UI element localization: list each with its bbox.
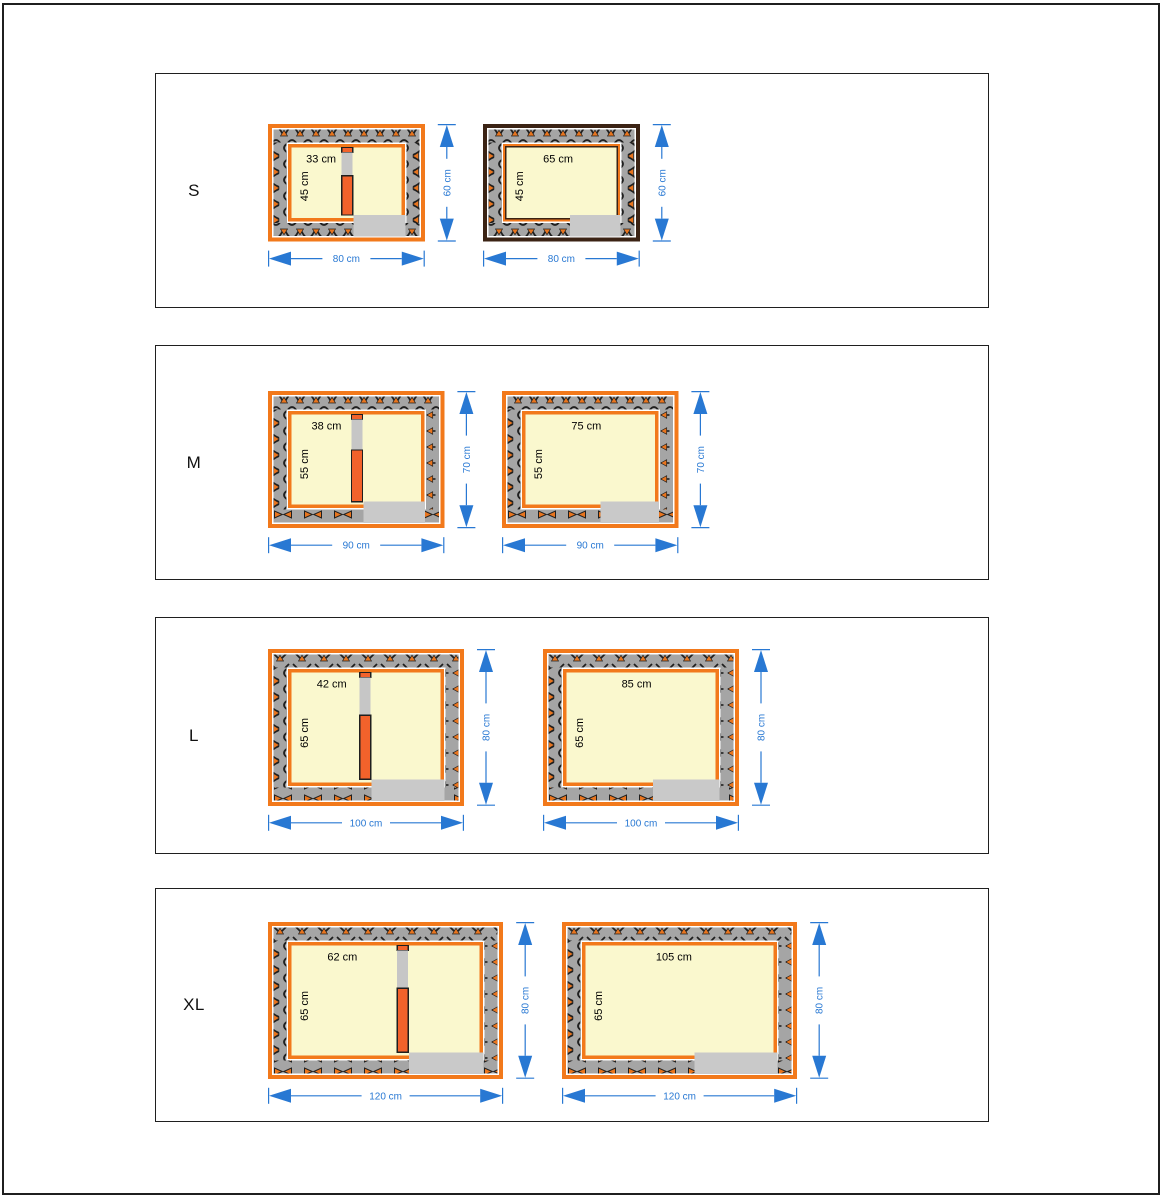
compartment-width-label: 85 cm <box>622 678 652 690</box>
divider-gray-segment <box>352 419 363 449</box>
width-dimension-label: 90 cm <box>343 541 370 552</box>
hatch-left-wall <box>274 667 287 787</box>
hatch-right-wall <box>621 142 634 223</box>
hatch-top-wall <box>273 928 497 941</box>
hatch-right-wall <box>779 941 792 1061</box>
hatch-right-wall <box>660 409 673 509</box>
height-dimension-label: 60 cm <box>657 169 668 196</box>
entrance-opening <box>570 215 620 236</box>
entrance-opening <box>364 502 425 523</box>
compartment-width-label: 75 cm <box>571 420 601 432</box>
divider-cap <box>360 672 371 677</box>
hatch-right-wall <box>445 667 458 787</box>
height-dimension-label: 60 cm <box>442 169 453 196</box>
hatch-right-wall <box>426 409 439 509</box>
entrance-opening <box>409 1052 484 1073</box>
hatch-left-wall <box>508 409 521 509</box>
height-dimension: 80 cm <box>810 923 828 1079</box>
divider-orange-segment <box>352 450 363 502</box>
height-dimension-label: 80 cm <box>481 714 492 741</box>
compartment-width-label: 62 cm <box>327 952 357 964</box>
hatch-top-wall <box>549 654 734 667</box>
hatch-left-wall <box>274 142 287 223</box>
compartment-width-label: 42 cm <box>317 678 347 690</box>
interior-height-label: 55 cm <box>533 449 545 479</box>
width-dimension-label: 120 cm <box>369 1091 402 1102</box>
hatch-top-wall <box>274 654 459 667</box>
row-label-m: M <box>168 453 220 473</box>
height-dimension-label: 70 cm <box>462 446 473 473</box>
size-row-m: M 38 cm55 cm90 cm70 cm75 cm55 cm90 cm70 … <box>155 345 989 580</box>
interior-height-label: 65 cm <box>593 991 605 1021</box>
interior-height-label: 65 cm <box>299 718 311 748</box>
floorplan-m-right: 75 cm55 cm90 cm70 cm <box>502 391 712 562</box>
height-dimension: 80 cm <box>516 923 534 1079</box>
width-dimension-label: 120 cm <box>663 1091 696 1102</box>
page: S 33 cm45 cm80 cm60 cm65 cm45 cm80 cm60 … <box>0 0 1166 1200</box>
interior-height-label: 45 cm <box>514 171 526 201</box>
width-dimension-label: 100 cm <box>350 818 383 829</box>
width-dimension-label: 80 cm <box>548 254 575 265</box>
size-row-l: L 42 cm65 cm100 cm80 cm85 cm65 cm100 cm8… <box>155 617 989 854</box>
hatch-right-wall <box>406 142 419 223</box>
floorplan-l-left: 42 cm65 cm100 cm80 cm <box>268 649 498 840</box>
hatch-left-wall <box>273 941 286 1061</box>
row-label-s: S <box>168 181 220 201</box>
height-dimension: 60 cm <box>438 125 456 241</box>
height-dimension: 60 cm <box>653 125 671 241</box>
floorplan-l-right: 85 cm65 cm100 cm80 cm <box>543 649 773 840</box>
height-dimension: 80 cm <box>752 650 770 806</box>
compartment-width-label: 65 cm <box>543 153 573 165</box>
interior-height-label: 65 cm <box>299 991 311 1021</box>
entrance-opening <box>601 502 659 523</box>
divider-orange-segment <box>397 988 408 1052</box>
hatch-top-wall <box>508 396 673 409</box>
divider-gray-segment <box>342 152 353 175</box>
interior-height-label: 55 cm <box>299 449 311 479</box>
entrance-opening <box>354 215 406 236</box>
divider-orange-segment <box>342 176 353 215</box>
hatch-left-wall <box>567 941 580 1061</box>
entrance-opening <box>653 779 720 800</box>
hatch-right-wall <box>720 667 733 787</box>
divider-cap <box>342 147 353 152</box>
compartment-width-label: 105 cm <box>656 952 692 964</box>
compartment-width-label: 38 cm <box>311 420 341 432</box>
height-dimension-label: 80 cm <box>521 987 532 1014</box>
width-dimension: 120 cm <box>269 1088 503 1104</box>
width-dimension-label: 90 cm <box>577 541 604 552</box>
divider-cap <box>352 414 363 419</box>
width-dimension: 100 cm <box>544 815 739 831</box>
row-label-l: L <box>168 726 220 746</box>
hatch-left-wall <box>274 409 287 509</box>
divider-orange-segment <box>360 715 371 779</box>
hatch-top-wall <box>274 396 439 409</box>
hatch-top-wall <box>274 129 420 142</box>
height-dimension: 70 cm <box>457 392 475 528</box>
size-row-xl: XL 62 cm65 cm120 cm80 cm105 cm65 cm120 c… <box>155 888 989 1122</box>
divider-gray-segment <box>360 677 371 715</box>
width-dimension: 80 cm <box>269 251 425 267</box>
width-dimension: 90 cm <box>503 537 678 553</box>
interior <box>291 946 479 1056</box>
width-dimension: 90 cm <box>269 537 444 553</box>
width-dimension: 120 cm <box>563 1088 797 1104</box>
entrance-opening <box>372 779 445 800</box>
width-dimension: 100 cm <box>269 815 464 831</box>
size-row-s: S 33 cm45 cm80 cm60 cm65 cm45 cm80 cm60 … <box>155 73 989 308</box>
floorplan-m-left: 38 cm55 cm90 cm70 cm <box>268 391 478 562</box>
divider-gray-segment <box>397 951 408 989</box>
height-dimension: 70 cm <box>691 392 709 528</box>
width-dimension-label: 80 cm <box>333 254 360 265</box>
height-dimension-label: 70 cm <box>696 446 707 473</box>
interior-height-label: 65 cm <box>574 718 586 748</box>
row-label-xl: XL <box>168 995 220 1015</box>
height-dimension-label: 80 cm <box>815 987 826 1014</box>
floorplan-s-left: 33 cm45 cm80 cm60 cm <box>268 124 459 276</box>
floorplan-xl-right: 105 cm65 cm120 cm80 cm <box>562 922 831 1113</box>
width-dimension-label: 100 cm <box>625 818 658 829</box>
height-dimension-label: 80 cm <box>756 714 767 741</box>
hatch-right-wall <box>485 941 498 1061</box>
hatch-left-wall <box>549 667 562 787</box>
interior-height-label: 45 cm <box>299 171 311 201</box>
hatch-top-wall <box>567 928 791 941</box>
width-dimension: 80 cm <box>484 251 640 267</box>
floorplan-xl-left: 62 cm65 cm120 cm80 cm <box>268 922 537 1113</box>
hatch-left-wall <box>489 142 502 223</box>
hatch-top-wall <box>489 129 635 142</box>
floorplan-s-right: 65 cm45 cm80 cm60 cm <box>483 124 674 276</box>
height-dimension: 80 cm <box>477 650 495 806</box>
compartment-width-label: 33 cm <box>306 153 336 165</box>
entrance-opening <box>695 1052 778 1073</box>
divider-cap <box>397 946 408 951</box>
